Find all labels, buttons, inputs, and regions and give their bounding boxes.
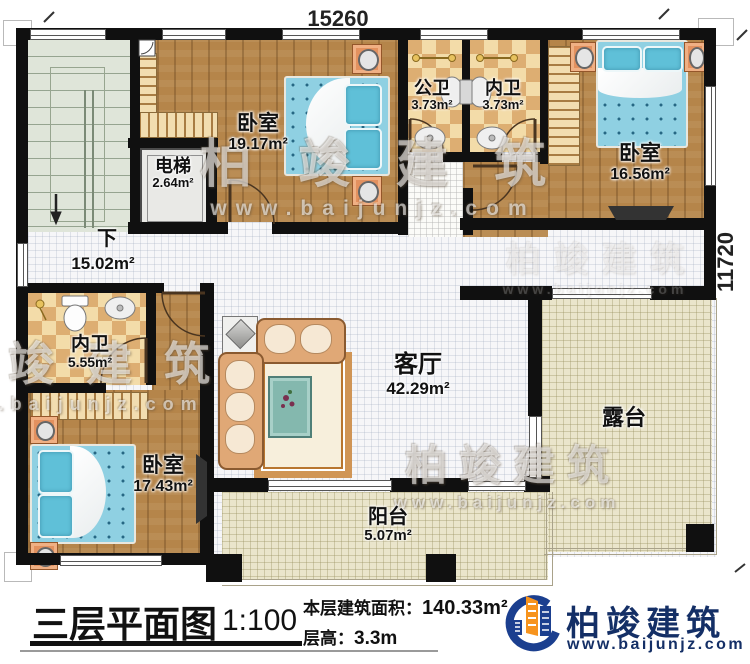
nightstand bbox=[352, 176, 382, 206]
wall-segment bbox=[460, 286, 552, 300]
wall-segment bbox=[650, 286, 704, 300]
plan-scale: 1:100 bbox=[222, 604, 297, 638]
wardrobe bbox=[138, 53, 157, 115]
wall-segment bbox=[16, 28, 28, 565]
title-underline-thin bbox=[20, 650, 438, 652]
room-label-bedroom-right: 卧室 16.56m² bbox=[582, 142, 698, 183]
wall-segment bbox=[528, 298, 542, 416]
wall-segment bbox=[28, 383, 106, 393]
room-area: 5.07m² bbox=[342, 528, 434, 545]
sofa-cushion bbox=[264, 324, 296, 354]
bath-entry-tile-floor bbox=[408, 162, 463, 237]
nightstand bbox=[684, 42, 706, 72]
window bbox=[30, 29, 106, 40]
room-area: 16.56m² bbox=[582, 166, 698, 184]
wall-segment bbox=[390, 478, 468, 492]
pillow bbox=[344, 84, 382, 126]
room-name: 卧室 bbox=[582, 142, 698, 166]
room-area: 2.64m² bbox=[141, 176, 205, 191]
room-area: 3.73m² bbox=[470, 98, 536, 113]
wall-segment bbox=[130, 40, 140, 232]
room-label-public-bath: 公卫 3.73m² bbox=[400, 78, 464, 113]
sofa-cushion bbox=[225, 360, 255, 390]
floor-area-line: 本层建筑面积：140.33m² bbox=[303, 594, 508, 620]
room-area: 19.17m² bbox=[198, 136, 318, 154]
wall-segment bbox=[426, 554, 456, 582]
pillow bbox=[38, 494, 74, 538]
title-block: 三层平面图 1:100 本层建筑面积：140.33m² 层高：3.3m 柏竣建筑… bbox=[0, 588, 750, 664]
window bbox=[529, 416, 542, 478]
room-name: 公卫 bbox=[400, 78, 464, 98]
floor-height-value: 3.3m bbox=[354, 628, 397, 649]
room-name: 阳台 bbox=[342, 506, 434, 528]
pillow bbox=[38, 450, 74, 494]
room-name: 电梯 bbox=[141, 156, 205, 176]
wall-segment bbox=[460, 218, 704, 230]
floor-height-label: 层高： bbox=[303, 629, 354, 648]
dimension-right: 11720 bbox=[713, 227, 737, 297]
bedroom-bottom-floor-a bbox=[152, 293, 200, 393]
title-underline-thick bbox=[30, 641, 302, 646]
stair-direction-text: 下 bbox=[97, 228, 117, 250]
staircase-inner-outline bbox=[50, 67, 105, 222]
staircase-center-rail bbox=[84, 90, 94, 228]
room-area: 17.43m² bbox=[106, 478, 220, 496]
floor-area-label: 本层建筑面积： bbox=[303, 599, 422, 618]
room-label-terrace: 露台 bbox=[586, 406, 662, 431]
dimension-top: 15260 bbox=[288, 6, 388, 32]
room-name: 内卫 bbox=[470, 78, 536, 98]
wall-segment bbox=[128, 222, 228, 234]
pillow bbox=[344, 128, 382, 170]
wall-segment bbox=[206, 554, 242, 582]
nightstand bbox=[570, 42, 596, 72]
room-label-bedroom-bottom: 卧室 17.43m² bbox=[106, 454, 220, 495]
floor-area-value: 140.33m² bbox=[422, 597, 508, 619]
coffee-table bbox=[268, 376, 312, 438]
wall-segment bbox=[443, 152, 502, 162]
room-name: 卧室 bbox=[198, 112, 318, 136]
room-area: 15.02m² bbox=[51, 254, 155, 273]
floorplan-page: { "plan": { "dimension_top": "15260", "d… bbox=[0, 0, 750, 664]
pillow bbox=[643, 46, 683, 72]
wall-segment bbox=[524, 476, 550, 492]
plan-title: 三层平面图 bbox=[32, 594, 217, 648]
sliding-door bbox=[268, 480, 392, 491]
room-area: 5.55m² bbox=[52, 355, 128, 371]
wall-segment bbox=[272, 222, 398, 234]
company-website: www.baijunjz.com bbox=[567, 636, 745, 654]
room-label-ensuite-left: 内卫 5.55m² bbox=[52, 334, 128, 371]
sofa-cushion bbox=[225, 392, 255, 422]
wall-segment bbox=[686, 524, 714, 552]
corner-lamp-table bbox=[222, 316, 258, 354]
wall-segment bbox=[200, 283, 214, 565]
room-name: 客厅 bbox=[356, 352, 480, 379]
room-label-elevator: 电梯 2.64m² bbox=[141, 156, 205, 191]
window bbox=[468, 481, 526, 491]
window bbox=[162, 29, 226, 40]
room-name: 卧室 bbox=[106, 454, 220, 478]
room-area: 42.29m² bbox=[356, 379, 480, 398]
hallway-area-label: 15.02m² bbox=[51, 254, 155, 273]
pillow bbox=[602, 46, 642, 72]
window bbox=[582, 29, 680, 40]
floor-height-line: 层高：3.3m bbox=[303, 624, 397, 650]
room-area: 3.73m² bbox=[400, 98, 464, 113]
nightstand bbox=[30, 416, 58, 444]
window bbox=[420, 29, 488, 40]
room-label-ensuite-top: 内卫 3.73m² bbox=[470, 78, 536, 113]
window bbox=[17, 243, 28, 287]
room-label-bedroom-top: 卧室 19.17m² bbox=[198, 112, 318, 153]
window bbox=[705, 86, 716, 186]
sofa-cushion bbox=[300, 324, 332, 354]
nightstand bbox=[352, 44, 382, 74]
stair-direction-label: 下 bbox=[92, 228, 122, 250]
sofa-cushion bbox=[225, 424, 255, 454]
wall-segment bbox=[535, 152, 548, 162]
room-label-living-room: 客厅 42.29m² bbox=[356, 352, 480, 398]
wall-segment bbox=[212, 478, 268, 492]
wall-segment bbox=[398, 40, 408, 235]
room-name: 露台 bbox=[586, 406, 662, 431]
wall-segment bbox=[16, 283, 164, 293]
bed-sheet bbox=[598, 68, 682, 98]
room-name: 内卫 bbox=[52, 334, 128, 355]
wall-segment bbox=[146, 283, 156, 385]
window bbox=[60, 555, 162, 566]
window bbox=[552, 288, 652, 299]
wall-segment bbox=[540, 40, 548, 164]
room-label-balcony: 阳台 5.07m² bbox=[342, 506, 434, 545]
company-logo-icon bbox=[500, 592, 562, 656]
